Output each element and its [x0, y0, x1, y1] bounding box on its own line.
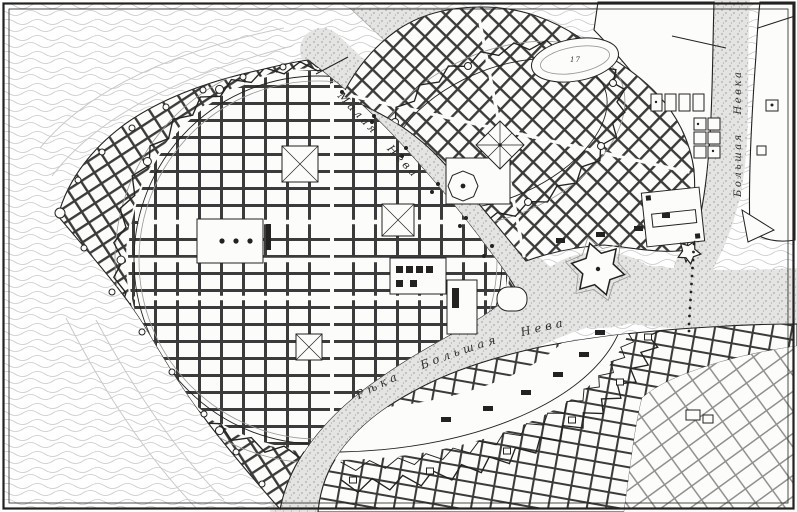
square-park — [382, 204, 414, 236]
east-fort-compound — [641, 187, 704, 247]
outwork-block — [686, 410, 700, 420]
college-row-plaza — [390, 258, 446, 294]
citadel-keep — [596, 267, 600, 271]
map-canvas: Малая Нева Рѣка Большая Нева Большая Нев… — [0, 0, 797, 512]
label-block-number: 17 — [570, 56, 581, 64]
central-plaza — [197, 219, 263, 263]
plaza-building — [266, 224, 271, 250]
outwork-block — [703, 415, 713, 423]
label-bolshaya-nevka: Большая Невка — [733, 70, 744, 198]
city-map-engraving: Малая Нева Рѣка Большая Нева Большая Нев… — [0, 0, 797, 512]
east-quarter-plaza — [447, 280, 477, 334]
square-park — [296, 334, 322, 360]
spit-tip-battery — [55, 208, 65, 218]
square-park — [282, 146, 318, 182]
east-point-block — [497, 287, 527, 311]
